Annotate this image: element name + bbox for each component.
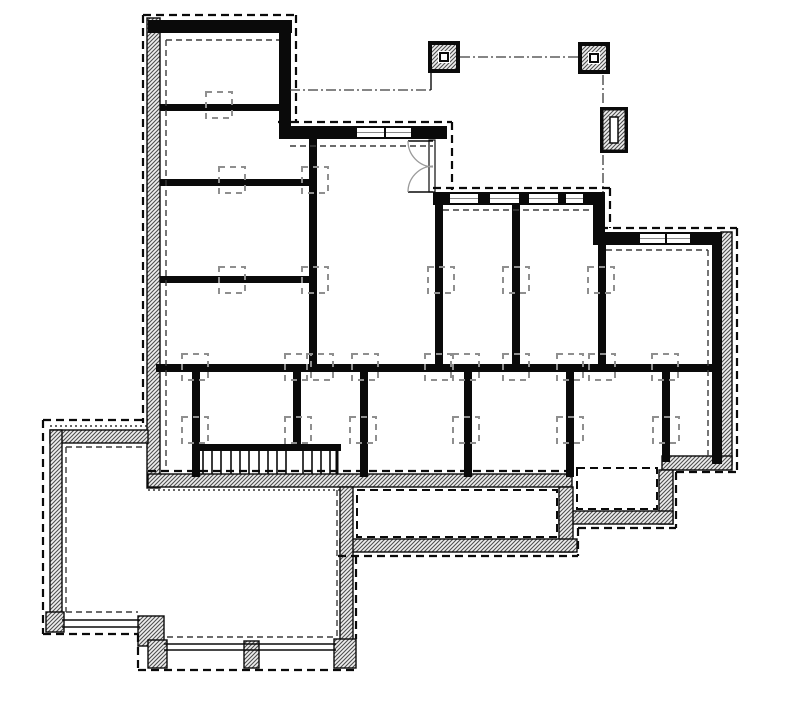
patio-pilaster <box>244 641 259 668</box>
deck-post-1-core <box>440 53 448 61</box>
porch-left-patio-band <box>340 487 353 640</box>
int-wall-c <box>160 276 316 283</box>
plan-background <box>0 0 800 701</box>
patio-top-band <box>50 430 148 443</box>
right-wall-core <box>712 232 722 464</box>
deck-post-2-core <box>590 54 598 62</box>
post-wall-3 <box>360 370 368 477</box>
upper-left-right-wall <box>279 20 291 138</box>
patio-corner-block-se <box>334 639 356 668</box>
int-wall-a <box>160 104 285 111</box>
post-wall-4 <box>464 370 472 477</box>
left-foundation-wall <box>147 18 160 488</box>
int-wall-v3 <box>512 202 520 368</box>
int-wall-v1 <box>309 133 317 368</box>
int-wall-v4 <box>598 243 606 368</box>
right-foundation-wall <box>721 232 732 464</box>
int-wall-v2 <box>435 202 443 368</box>
floor-plan-page <box>0 0 800 701</box>
patio-left-band <box>50 430 62 620</box>
stair-rail <box>197 444 341 451</box>
int-wall-b <box>160 179 316 186</box>
top-wall-upper-left <box>148 20 292 33</box>
post-wall-1 <box>192 370 200 477</box>
post-wall-5 <box>566 370 574 477</box>
pier-pad-slot <box>610 117 618 143</box>
floor-plan-drawing <box>0 0 800 701</box>
post-wall-2 <box>293 370 301 450</box>
porch-bottom-wall <box>340 539 577 552</box>
bumpout-bottom-wall <box>559 511 673 524</box>
main-beam <box>156 364 722 372</box>
patio-corner-block-sw <box>46 612 64 632</box>
